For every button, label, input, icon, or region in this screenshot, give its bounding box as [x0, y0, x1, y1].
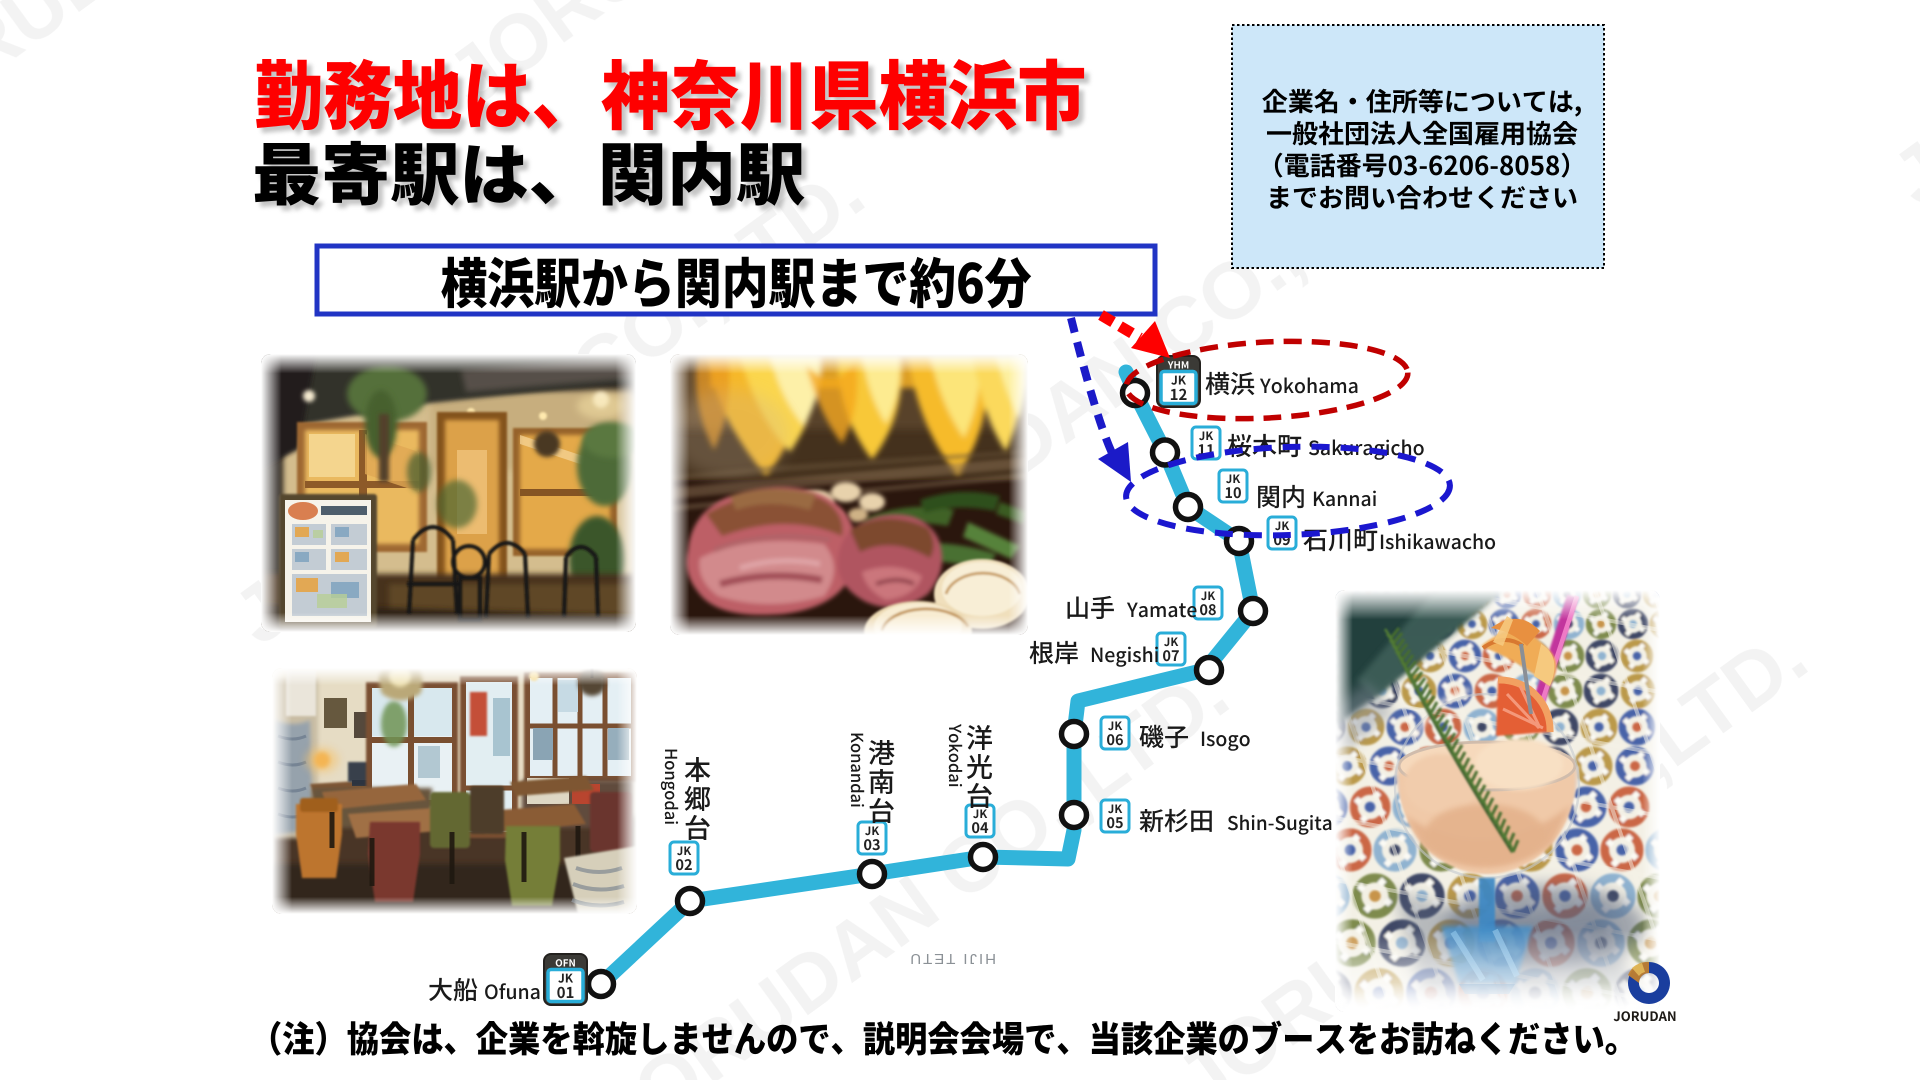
- svg-text:HIJI TETU: HIJI TETU: [908, 950, 996, 967]
